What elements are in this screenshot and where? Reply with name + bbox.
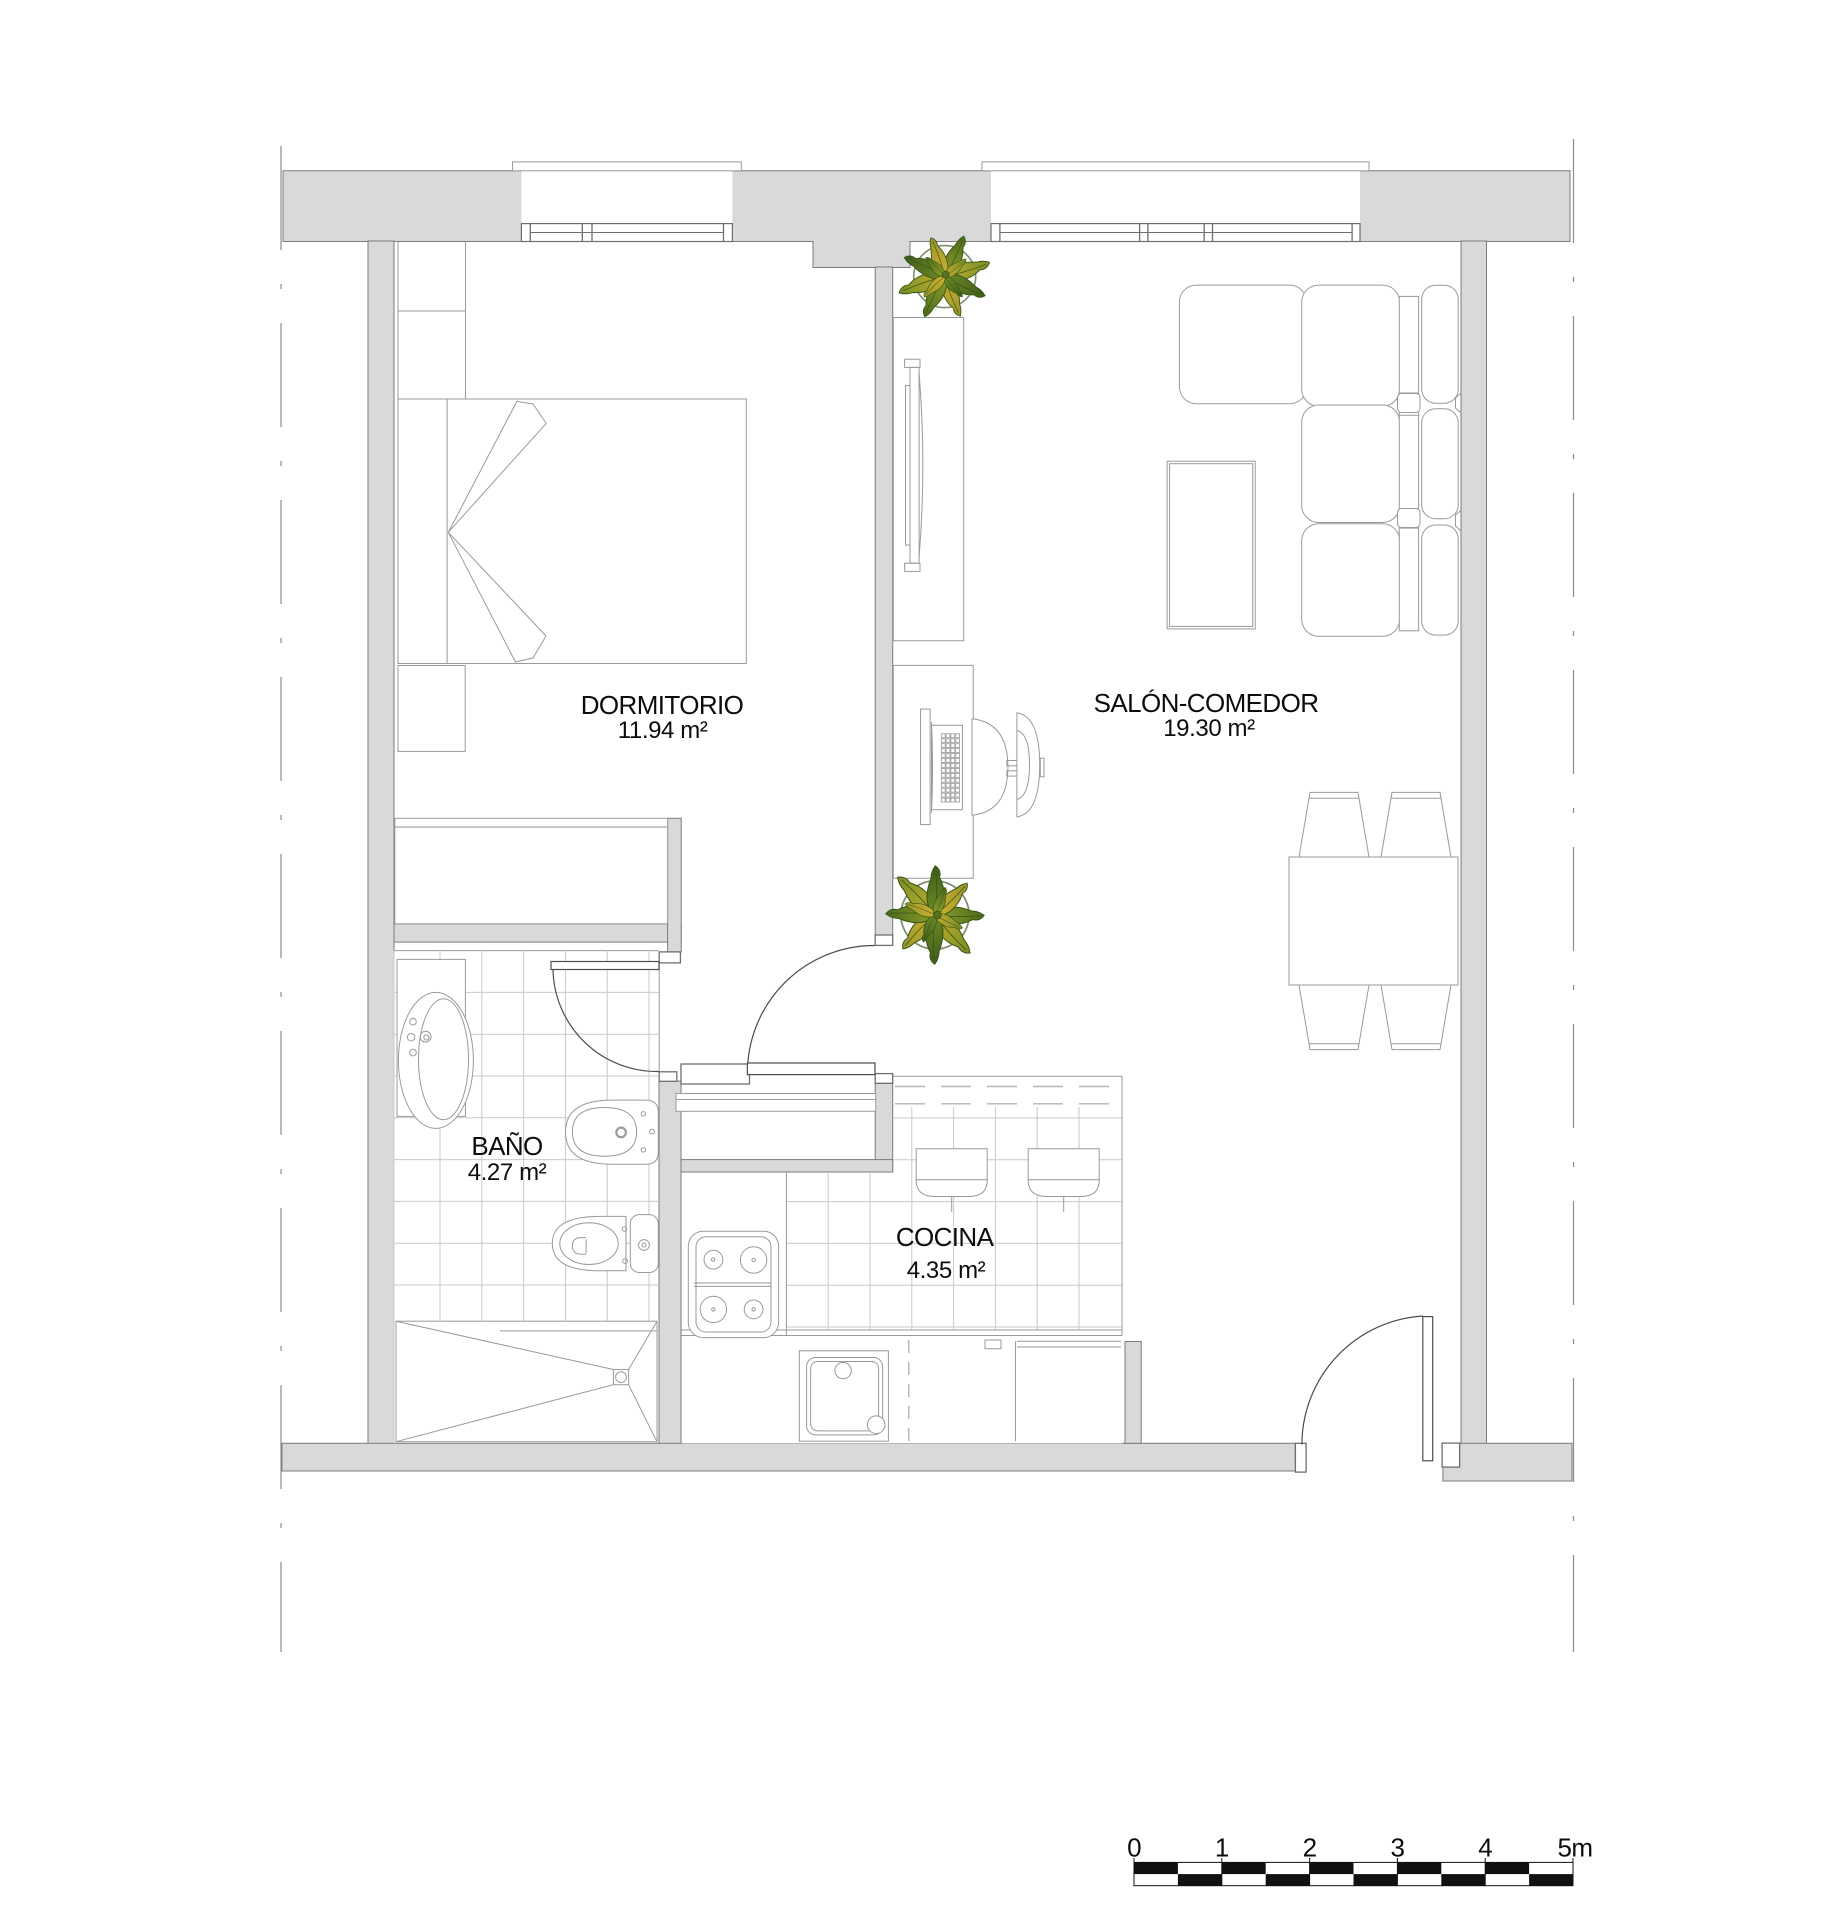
svg-text:1: 1 (1215, 1833, 1229, 1863)
svg-text:19.30 m²: 19.30 m² (1163, 715, 1255, 742)
svg-text:BAÑO: BAÑO (471, 1131, 542, 1161)
svg-text:5m: 5m (1558, 1833, 1593, 1863)
svg-text:4: 4 (1478, 1833, 1492, 1863)
svg-text:2: 2 (1303, 1833, 1317, 1863)
svg-text:DORMITORIO: DORMITORIO (581, 690, 744, 720)
svg-text:0: 0 (1127, 1833, 1141, 1863)
svg-text:4.35 m²: 4.35 m² (907, 1257, 986, 1284)
svg-text:11.94 m²: 11.94 m² (618, 717, 708, 744)
svg-text:COCINA: COCINA (896, 1222, 995, 1252)
svg-text:SALÓN-COMEDOR: SALÓN-COMEDOR (1094, 688, 1319, 718)
svg-text:4.27 m²: 4.27 m² (468, 1159, 547, 1186)
svg-text:3: 3 (1390, 1833, 1404, 1863)
